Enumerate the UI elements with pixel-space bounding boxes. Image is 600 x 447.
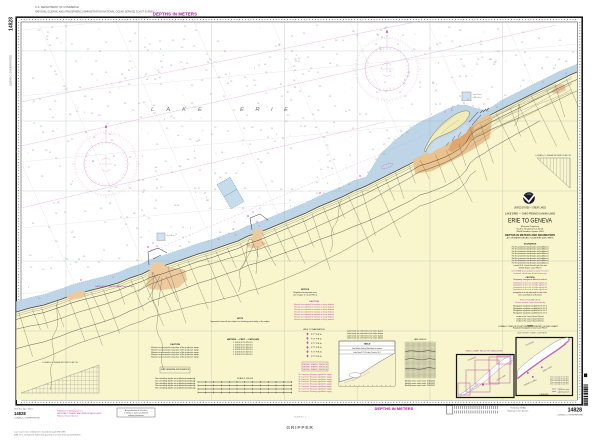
svg-text:The controlling depths are pub: The controlling depths are published per…	[155, 387, 196, 390]
svg-text:Spoil Area: Spoil Area	[167, 234, 175, 237]
svg-text:Printed by NOAA: Printed by NOAA	[510, 407, 526, 410]
svg-text:DEPTHS IN METERS: DEPTHS IN METERS	[153, 11, 197, 16]
svg-text:Temporary changes or defects i: Temporary changes or defects in aids to	[513, 278, 547, 281]
svg-text:AIDS TO NAVIGATION: AIDS TO NAVIGATION	[303, 328, 325, 331]
svg-text:ERIE: ERIE	[240, 107, 300, 113]
svg-text:LAKE SURVEY CHART COVERAGE: LAKE SURVEY CHART COVERAGE	[517, 332, 548, 335]
svg-text:LORAN-C LINES OF POSITION OVER: LORAN-C LINES OF POSITION OVERPRINTED ON…	[498, 325, 559, 328]
svg-text:Navigation regulations publish: Navigation regulations published in Ch 2	[513, 312, 547, 315]
svg-text:World Geodetic System 1984: World Geodetic System 1984	[517, 230, 545, 233]
svg-text:Improved channels are subject: Improved channels are subject to shoalin…	[210, 320, 269, 323]
svg-text:see chapter 2 Coast Pilot 6: see chapter 2 Coast Pilot 6	[293, 294, 318, 297]
svg-text:For the prominent landmarks an: For the prominent landmarks and addition…	[512, 261, 549, 264]
svg-text:NATIONAL OCEANIC AND ATMOSPHER: NATIONAL OCEANIC AND ATMOSPHERIC ADM.	[57, 412, 102, 415]
svg-text:CAUTION: CAUTION	[170, 343, 180, 346]
svg-text:NATIONAL OCEANIC AND ATMOSPHER: NATIONAL OCEANIC AND ATMOSPHERIC ADMINIS…	[35, 11, 155, 14]
svg-text:LORAN-C OVERPRINTED: LORAN-C OVERPRINTED	[557, 413, 584, 416]
svg-text:National Ocean Service: National Ocean Service	[57, 415, 79, 418]
svg-text:DEPTHS IN METERS AND DECIMETER: DEPTHS IN METERS AND DECIMETERS	[505, 234, 555, 237]
svg-text:METERS — FEET — FATHOMS: METERS — FEET — FATHOMS	[227, 338, 260, 341]
svg-text:Mercator Projection: Mercator Projection	[521, 225, 540, 228]
svg-text:St. Lawrence Seaway regulation: St. Lawrence Seaway regulations apply	[298, 390, 331, 393]
svg-text:United States Coast Pilot 6: United States Coast Pilot 6	[519, 266, 542, 269]
svg-text:R “2” Fl R 4s: R “2” Fl R 4s	[311, 334, 322, 336]
svg-text:LAKE ERIE — OHIO-PENNSYLVANIA-: LAKE ERIE — OHIO-PENNSYLVANIA-LAKE	[505, 212, 555, 216]
svg-text:14828: 14828	[9, 17, 15, 31]
svg-text:SMALL-CRAFT FACILITIES TABULAT: SMALL-CRAFT FACILITIES TABULATED	[466, 350, 504, 353]
svg-text:without permission: without permission	[128, 414, 144, 417]
svg-text:SOUNDINGS: SOUNDINGS	[524, 244, 537, 246]
svg-text:R “2” Fl R 4s: R “2” Fl R 4s	[311, 356, 322, 358]
svg-text:Lake Erie 173.5 Lake Ont: Lake Erie 173.5 Lake Ontario 74.2	[353, 351, 380, 354]
svg-text:LORAN-C OVERPRINTED: LORAN-C OVERPRINTED	[14, 416, 41, 419]
svg-text:Low Water Datum Elevation in: Low Water Datum Elevation in meters	[352, 347, 382, 350]
svg-text:ERIE TO GENEVA: ERIE TO GENEVA	[508, 217, 552, 224]
svg-text:Regulated navigation area: Regulated navigation area	[293, 291, 317, 294]
svg-text:LAKE LEVELS: LAKE LEVELS	[414, 338, 427, 341]
svg-text:AT LOW WATER DATUM 173.5 METER: AT LOW WATER DATUM 173.5 METERS (569.2 F…	[507, 237, 554, 240]
svg-text:NOTE B: NOTE B	[301, 289, 310, 291]
svg-text:LORAN-C OVERPRINTED: LORAN-C OVERPRINTED	[9, 55, 13, 86]
svg-text:Monthly mean water levels 1918: Monthly mean water levels 1918-2012	[405, 384, 435, 387]
svg-text:LORAN-C LINEAR INTERPOLATOR: LORAN-C LINEAR INTERPOLATOR	[535, 154, 571, 157]
svg-text:R “2” Fl R 4s: R “2” Fl R 4s	[311, 343, 322, 345]
svg-text:see Local Notice to Mariners: see Local Notice to Mariners	[518, 293, 542, 296]
svg-text:R “2” Fl R 4s: R “2” Fl R 4s	[311, 338, 322, 340]
svg-text:adjoining charts: adjoining charts	[558, 391, 570, 394]
svg-text:(NM 17.0 4/13/2013), NM 1813 (: (NM 17.0 4/13/2013), NM 1813 (posted 5/1…	[14, 434, 81, 437]
svg-text:CAUTION: CAUTION	[309, 300, 319, 303]
svg-text:14828 this chart: 14828 this chart	[558, 388, 571, 391]
svg-text:PLATE NO. 1: PLATE NO. 1	[294, 416, 307, 419]
svg-text:Scale 1:120,000 at Lat 42°15': Scale 1:120,000 at Lat 42°15'	[516, 228, 544, 231]
svg-text:Mariners are warned to stay cl: Mariners are warned to stay clear of the…	[151, 356, 198, 359]
svg-text:(see note): (see note)	[473, 96, 482, 99]
svg-text:R “2” Fl R 4s: R “2” Fl R 4s	[311, 352, 322, 354]
svg-text:U.S. DEPARTMENT OF COMMERCE: U.S. DEPARTMENT OF COMMERCE	[35, 5, 79, 9]
svg-text:TABLE: TABLE	[364, 343, 371, 346]
svg-text:GRIPPER: GRIPPER	[286, 425, 313, 431]
svg-text:LORAN-C LINEAR INTERPOLATOR: LORAN-C LINEAR INTERPOLATOR	[42, 361, 78, 364]
svg-text:R “2” Fl R 4s: R “2” Fl R 4s	[311, 347, 322, 349]
svg-text:1 3.28 0.55 10: 1 3.28 0.55 10 32.8 5.5	[233, 354, 252, 356]
svg-text:DEPTHS IN METERS: DEPTHS IN METERS	[375, 407, 414, 411]
svg-text:corrected: distribution.charts: corrected: distribution.charts@noaa.gov	[513, 272, 547, 275]
svg-text:made to the Coast Guard Distri: made to the Coast Guard District	[516, 320, 544, 323]
svg-text:SCALE 1:120,000: SCALE 1:120,000	[237, 377, 254, 380]
svg-text:14828: 14828	[568, 408, 583, 414]
svg-text:VESSEL TRAFFIC SERVICE: VESSEL TRAFFIC SERVICE	[303, 368, 328, 371]
svg-text:Spoil Area: Spoil Area	[473, 93, 483, 96]
svg-text:Contact nearest Coast Guard fa: Contact nearest Coast Guard facility	[515, 301, 545, 304]
svg-text:SUPPLEMENTAL INFORMATION: SUPPLEMENTAL INFORMATION	[161, 368, 190, 371]
svg-text:LAKE ERIE: LAKE ERIE	[540, 393, 550, 396]
svg-text:National Ocean Service: National Ocean Service	[507, 409, 529, 412]
svg-text:LAKE: LAKE	[151, 107, 214, 113]
svg-text:NOTE: NOTE	[237, 318, 244, 320]
svg-text:14828: 14828	[14, 411, 26, 416]
svg-text:Limitations on the use of radi: Limitations on the use of radio signals …	[513, 288, 547, 291]
svg-text:UNITED STATES — GREAT LAKES: UNITED STATES — GREAT LAKES	[514, 206, 546, 209]
svg-text:Published at Washington D.C.: Published at Washington D.C.	[57, 410, 84, 413]
svg-text:Vessels are advised to maintai: Vessels are advised to maintain a sharp …	[294, 318, 335, 321]
svg-text:Lake levels are referred to lo: Lake levels are referred to low water da…	[347, 337, 384, 340]
svg-text:Last Correction: 4/26/2013 C: Last Correction: 4/26/2013 Cleared throu…	[14, 431, 65, 434]
